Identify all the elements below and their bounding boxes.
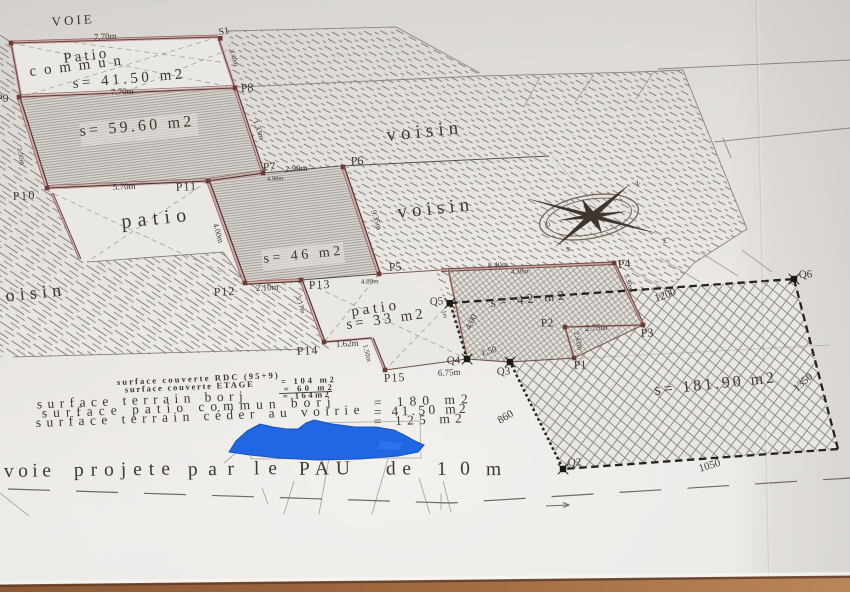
- svg-text:Q6: Q6: [799, 268, 814, 281]
- svg-text:P4: P4: [617, 256, 630, 271]
- svg-text:P9: P9: [0, 91, 9, 105]
- svg-text:P7: P7: [262, 159, 275, 174]
- svg-text:P12: P12: [213, 284, 235, 299]
- svg-text:O: O: [545, 221, 550, 229]
- svg-text:P11: P11: [175, 179, 197, 194]
- svg-text:Q3: Q3: [497, 365, 512, 378]
- svg-text:S1: S1: [218, 26, 230, 38]
- svg-text:4.90m: 4.90m: [267, 175, 284, 183]
- svg-text:P2: P2: [540, 315, 553, 330]
- svg-text:VOIE: VOIE: [51, 11, 95, 29]
- svg-text:5.70m: 5.70m: [113, 181, 136, 192]
- svg-text:P15: P15: [383, 370, 405, 385]
- svg-text:P14: P14: [296, 343, 318, 358]
- svg-text:P5: P5: [388, 259, 401, 274]
- svg-text:P3: P3: [640, 325, 653, 340]
- svg-text:2.75m: 2.75m: [585, 322, 608, 333]
- svg-text:m: m: [486, 459, 501, 480]
- svg-text:7.70m: 7.70m: [94, 31, 117, 42]
- svg-text:6.75m: 6.75m: [438, 367, 461, 378]
- svg-text:par: par: [188, 459, 235, 481]
- svg-text:4.89m: 4.89m: [361, 277, 380, 286]
- svg-text:2.90m: 2.90m: [285, 163, 308, 174]
- svg-text:Q5: Q5: [430, 295, 445, 308]
- svg-text:P10: P10: [12, 188, 36, 203]
- svg-text:Q4: Q4: [447, 354, 462, 367]
- svg-text:1.62m: 1.62m: [336, 338, 359, 349]
- svg-text:P8: P8: [240, 80, 253, 95]
- svg-text:S: S: [566, 246, 570, 254]
- svg-text:8.40m: 8.40m: [488, 260, 509, 270]
- svg-text:E: E: [663, 237, 667, 245]
- svg-text:Q2: Q2: [568, 456, 582, 469]
- svg-text:P6: P6: [350, 153, 363, 168]
- svg-text:4.30m: 4.30m: [511, 267, 530, 276]
- svg-text:2.10m: 2.10m: [256, 282, 279, 293]
- svg-text:P13: P13: [308, 277, 330, 292]
- svg-text:7.70m: 7.70m: [111, 86, 134, 97]
- svg-text:P1: P1: [573, 357, 586, 372]
- svg-text:PAU: PAU: [299, 458, 350, 480]
- svg-text:voie: voie: [4, 460, 51, 482]
